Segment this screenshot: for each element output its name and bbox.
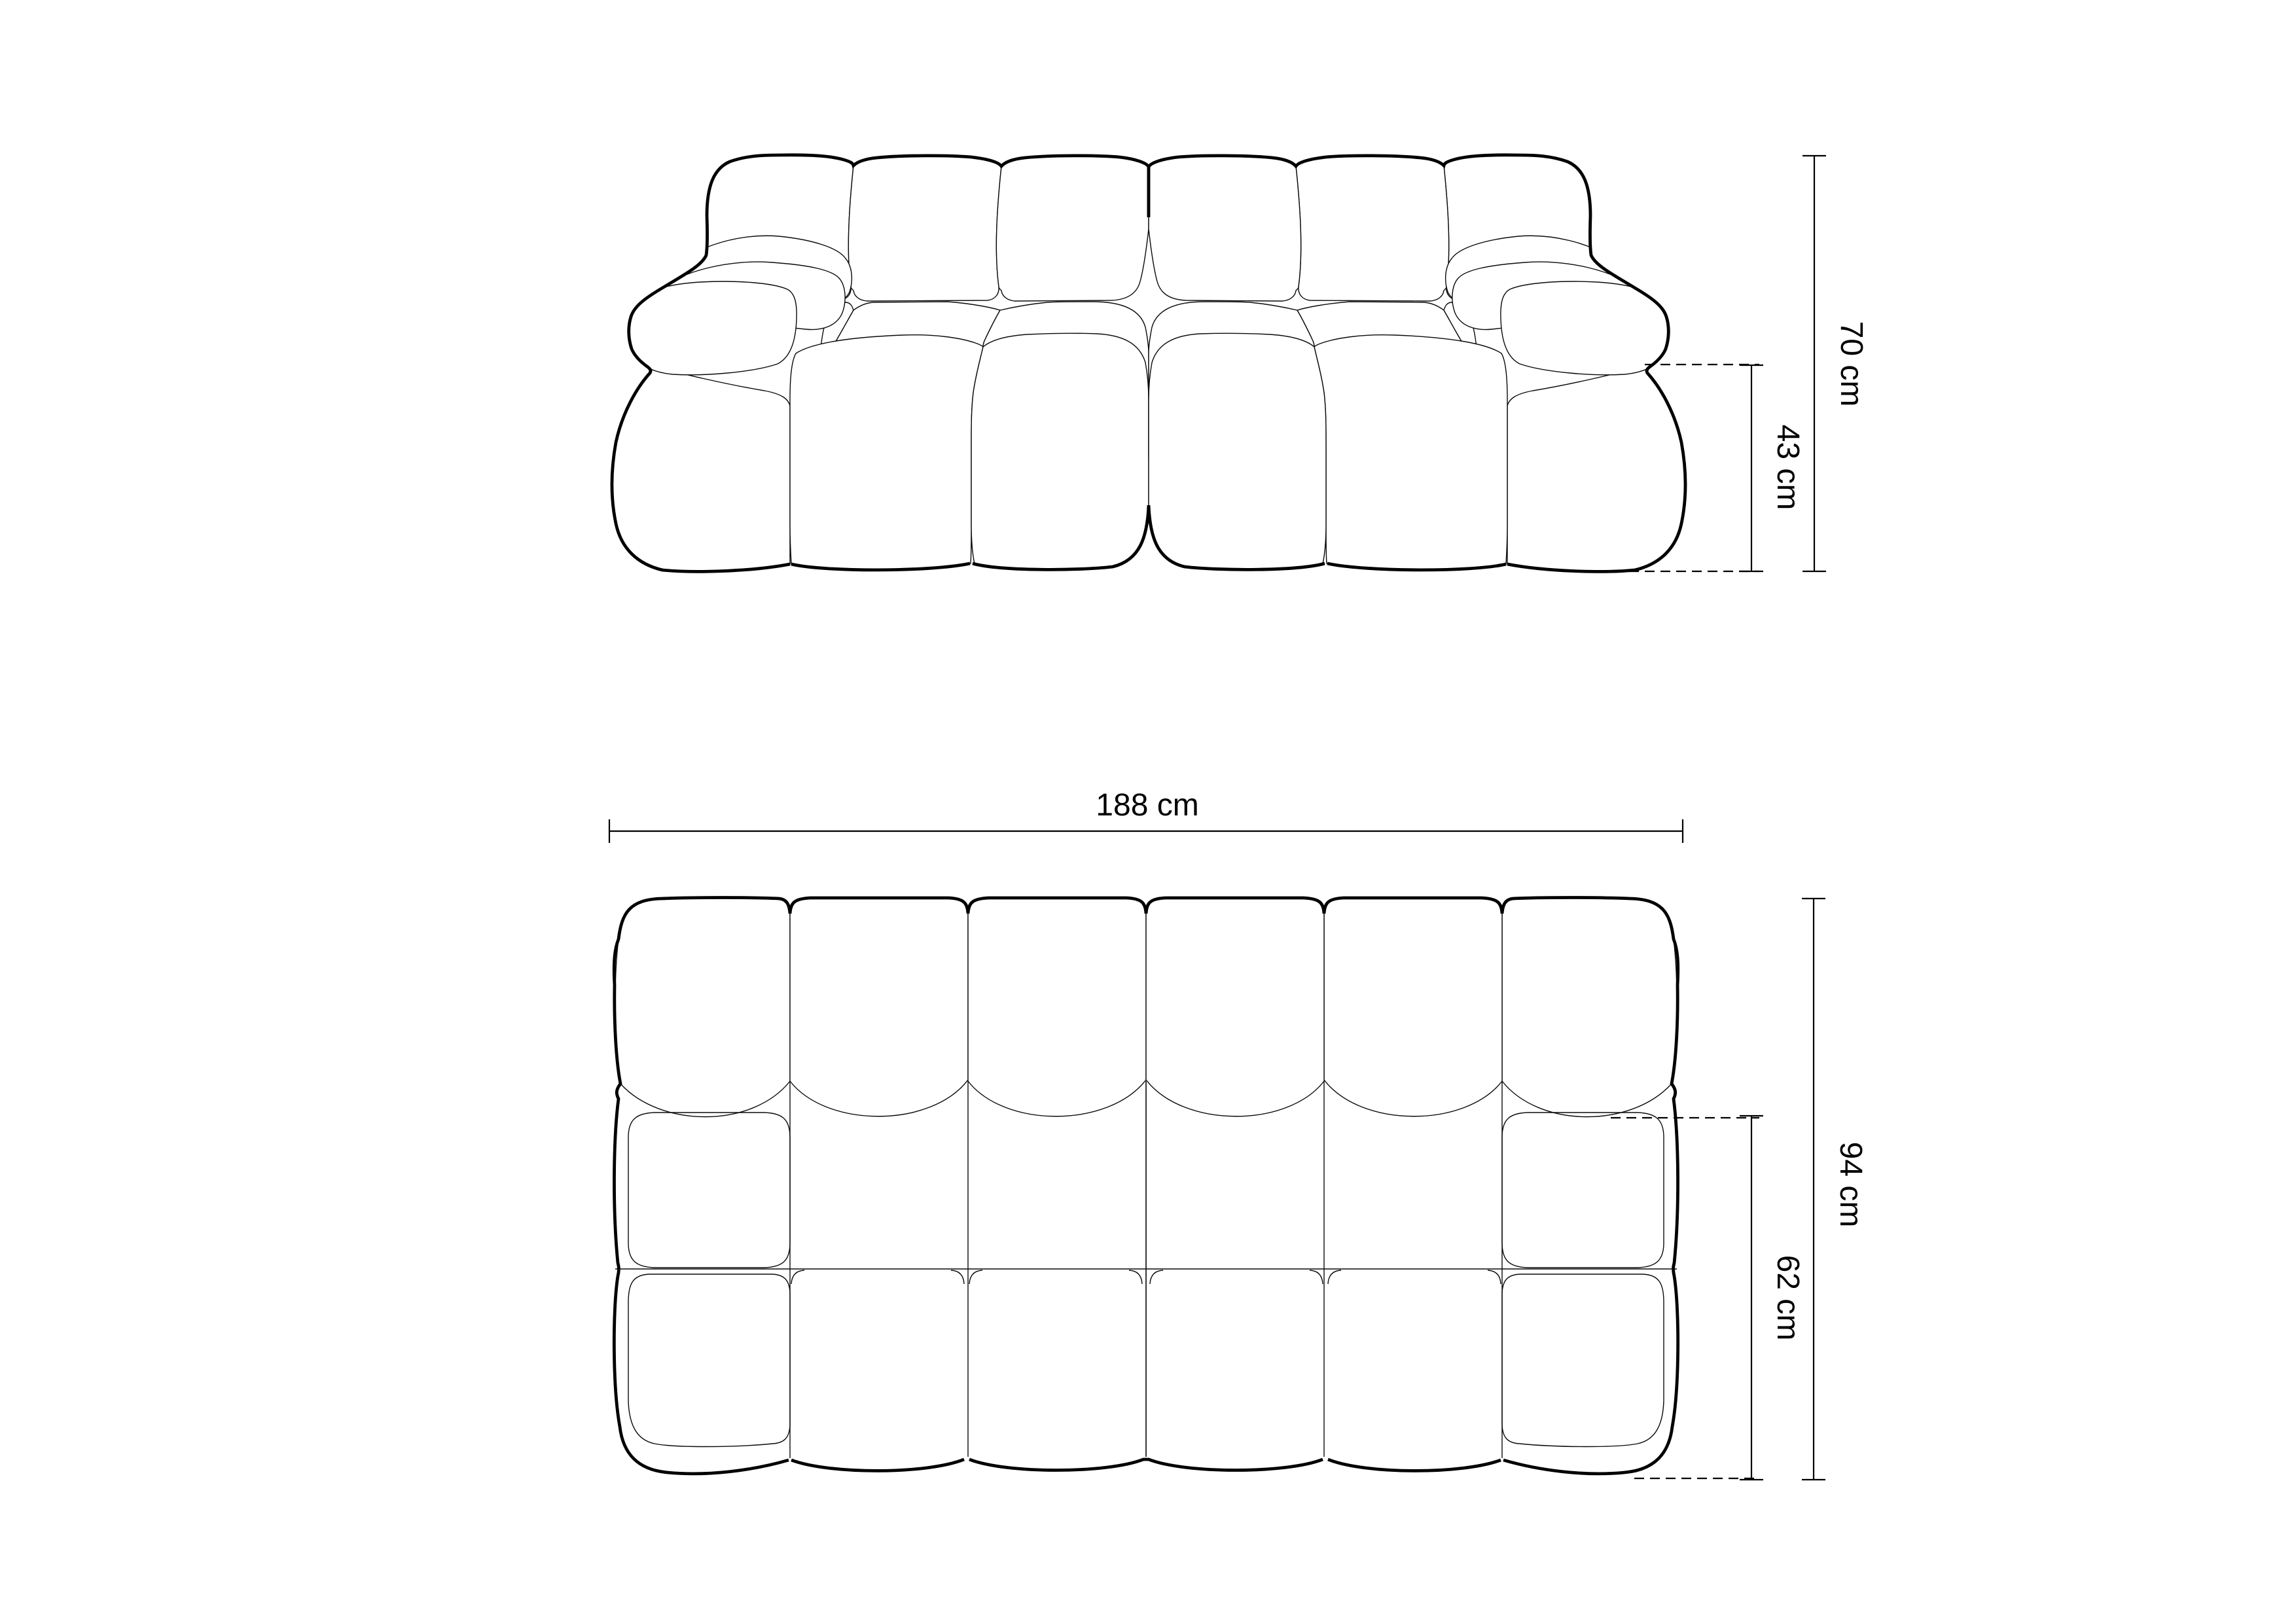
svg-text:62 cm: 62 cm	[1770, 1255, 1805, 1341]
svg-text:94 cm: 94 cm	[1833, 1142, 1868, 1228]
svg-text:43 cm: 43 cm	[1770, 425, 1805, 510]
svg-text:188 cm: 188 cm	[1096, 788, 1198, 823]
svg-text:70 cm: 70 cm	[1834, 321, 1869, 407]
